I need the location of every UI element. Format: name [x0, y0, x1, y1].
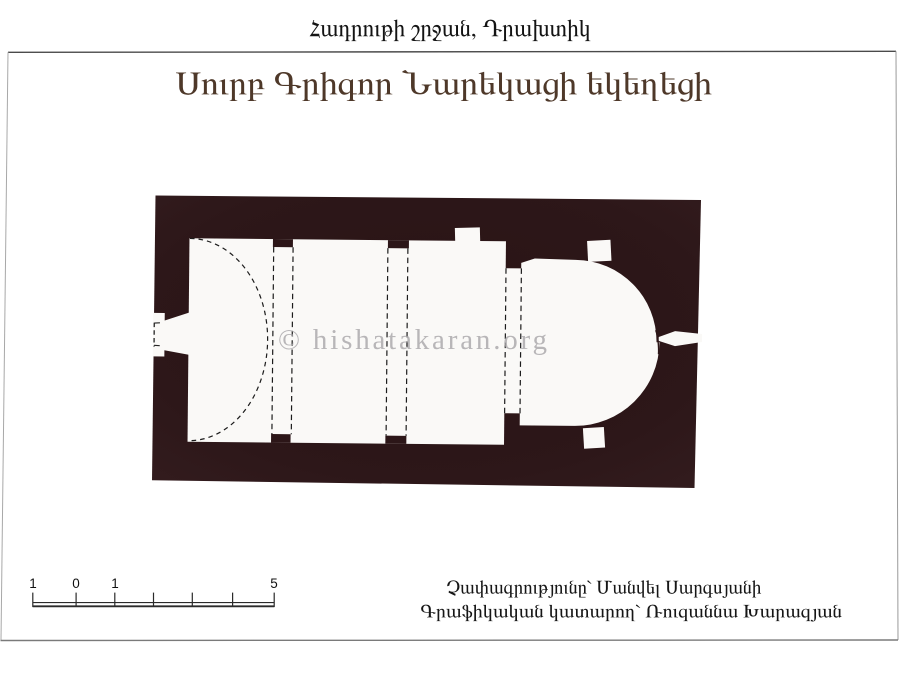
svg-text:1: 1	[29, 576, 37, 591]
svg-text:5: 5	[270, 576, 278, 591]
svg-text:1: 1	[111, 576, 119, 591]
svg-text:0: 0	[72, 576, 80, 591]
